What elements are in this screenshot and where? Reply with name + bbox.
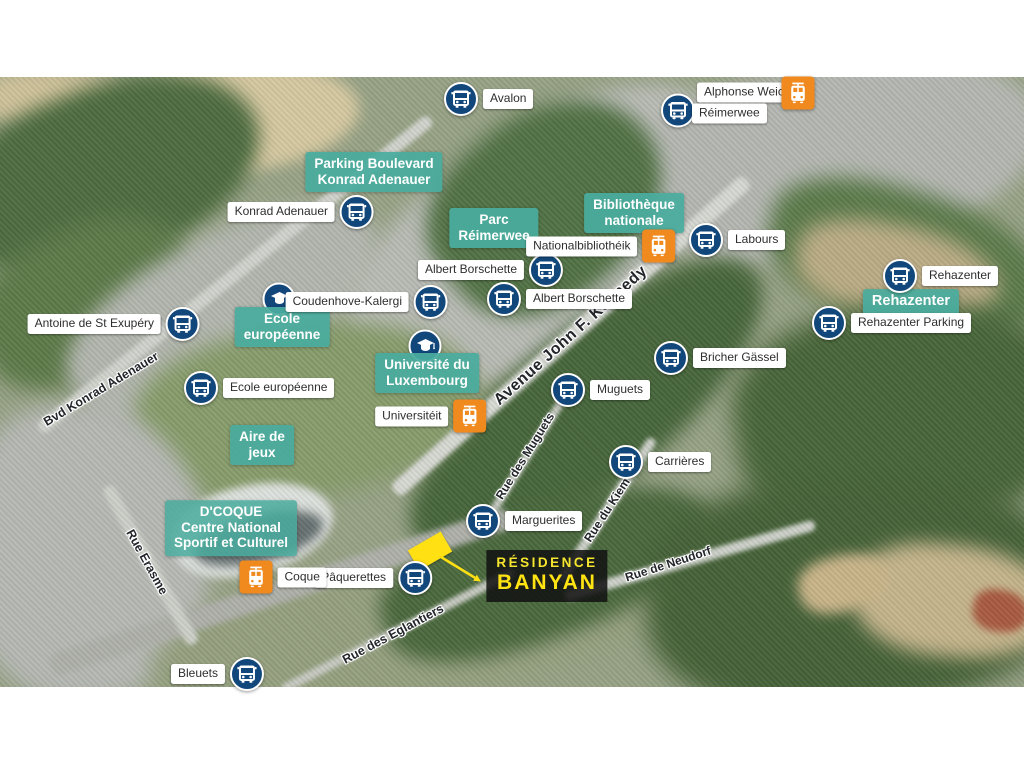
poi-line: Parc	[458, 212, 529, 228]
poi-label-aire-de-jeux: Aire de jeux	[230, 425, 294, 465]
residence-name-line2: BANYAN	[496, 571, 597, 595]
bus-icon	[689, 223, 723, 257]
bus-stop-antoine-de-st-exupery: Antoine de St Exupéry	[28, 307, 200, 341]
poi-label-dcoque: D'COQUE Centre National Sportif et Cultu…	[165, 500, 297, 556]
bus-stop-label: Marguerites	[505, 511, 582, 531]
poi-line: nationale	[593, 213, 675, 229]
bus-icon	[812, 306, 846, 340]
bus-stop-avalon: Avalon	[444, 82, 533, 116]
bus-stop-ecole-europeenne: Ecole européenne	[184, 371, 334, 405]
bus-stop-label: Rehazenter	[922, 266, 998, 286]
bus-icon	[184, 371, 218, 405]
tram-stop-universiteit: Universitéit	[375, 400, 486, 433]
bus-stop-rehazenter: Rehazenter	[883, 259, 998, 293]
tram-icon	[240, 561, 273, 594]
bus-stop-bleuets: Bleuets	[171, 657, 264, 691]
tram-stop-label: Universitéit	[375, 406, 448, 426]
bus-stop-konrad-adenauer: Konrad Adenauer	[228, 195, 374, 229]
bus-icon	[444, 82, 478, 116]
bus-icon	[487, 282, 521, 316]
bus-stop-label: Bricher Gässel	[693, 348, 786, 368]
bus-stop-label: Albert Borschette	[526, 289, 632, 309]
bus-icon	[166, 307, 200, 341]
bus-stop-label: Muguets	[590, 380, 650, 400]
bus-stop-label: Antoine de St Exupéry	[28, 314, 161, 334]
poi-label-parking-boulevard-konrad-adenauer: Parking Boulevard Konrad Adenauer	[305, 152, 442, 192]
bus-stop-label: Labours	[728, 230, 785, 250]
bus-icon	[551, 373, 585, 407]
tram-icon	[782, 77, 815, 110]
bus-stop-label: Avalon	[483, 89, 533, 109]
bus-icon	[230, 657, 264, 691]
poi-line: Luxembourg	[384, 373, 470, 389]
bus-stop-marguerites: Marguerites	[466, 504, 582, 538]
bus-stop-label: Carrières	[648, 452, 711, 472]
bus-stop-coudenhove-kalergi: Coudenhove-Kalergi	[286, 285, 448, 319]
bus-stop-label: Réimerwee	[692, 104, 767, 124]
bus-icon	[398, 561, 432, 595]
poi-line: Université du	[384, 357, 470, 373]
bus-stop-label: Coudenhove-Kalergi	[286, 292, 409, 312]
tram-stop-label: Coque	[278, 567, 327, 587]
bus-icon	[609, 445, 643, 479]
bus-icon	[883, 259, 917, 293]
bus-stop-paquerettes: Pâquerettes	[314, 561, 432, 595]
bus-stop-label: Bleuets	[171, 664, 225, 684]
tram-icon	[643, 230, 676, 263]
tram-icon	[454, 400, 487, 433]
poi-line: Bibliothèque	[593, 197, 675, 213]
tram-stop-label: Nationalbibliothéik	[526, 236, 637, 256]
bus-stop-labours: Labours	[689, 223, 785, 257]
bus-icon	[340, 195, 374, 229]
poi-line: jeux	[239, 445, 285, 461]
bus-icon	[414, 285, 448, 319]
poi-label-universite-du-luxembourg: Université du Luxembourg	[375, 353, 479, 393]
tram-stop-nationalbibliotheik: Nationalbibliothéik	[526, 230, 675, 263]
bus-stop-label: Albert Borschette	[418, 260, 524, 280]
bus-stop-label: Konrad Adenauer	[228, 202, 335, 222]
poi-line: Sportif et Culturel	[174, 535, 288, 551]
residence-banyan-label: RÉSIDENCE BANYAN	[486, 550, 607, 602]
poi-line: Aire de	[239, 429, 285, 445]
bus-stop-carrieres: Carrières	[609, 445, 711, 479]
poi-line: Réimerwee	[458, 228, 529, 244]
bus-stop-bricher-gassel: Bricher Gässel	[654, 341, 786, 375]
bus-stop-label: Ecole européenne	[223, 378, 334, 398]
tram-stop-coque: Coque	[240, 561, 327, 594]
bus-icon	[661, 93, 695, 127]
poi-line: Konrad Adenauer	[314, 172, 433, 188]
poi-line: Centre National	[174, 520, 288, 536]
pointer-arrow	[436, 553, 486, 587]
bus-stop-label: Rehazenter Parking	[851, 313, 971, 333]
poi-line: européenne	[244, 327, 321, 343]
tram-stop-alphonse-weicker	[782, 77, 815, 110]
bus-icon	[466, 504, 500, 538]
map-canvas: Bvd Konrad Adenauer Avenue John F. Kenne…	[0, 0, 1024, 768]
bus-stop-rehazenter-parking: Rehazenter Parking	[812, 306, 971, 340]
poi-line: Parking Boulevard	[314, 156, 433, 172]
poi-line: D'COQUE	[174, 504, 288, 520]
bus-icon	[654, 341, 688, 375]
bus-stop-muguets: Muguets	[551, 373, 650, 407]
poi-label-bibliotheque-nationale: Bibliothèque nationale	[584, 193, 684, 233]
residence-name-line1: RÉSIDENCE	[496, 555, 597, 570]
bus-stop-albert-borschette-2: Albert Borschette	[487, 282, 632, 316]
